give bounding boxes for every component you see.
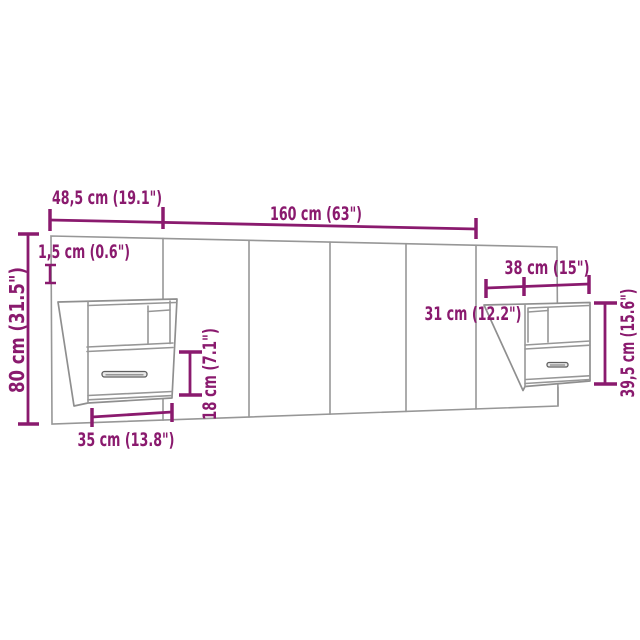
label-cabinet-total-width: 38 cm (15") xyxy=(505,257,590,279)
top-width-dim-line xyxy=(50,220,476,229)
label-drawer-height: 18 cm (7.1") xyxy=(199,328,221,420)
cabinet-width-dim-line xyxy=(486,284,589,288)
diagram-canvas: 48,5 cm (19.1") 160 cm (63") 1,5 cm (0.6… xyxy=(0,0,640,640)
label-cabinet-front-width: 35 cm (13.8") xyxy=(78,429,175,451)
label-cabinet-depth: 31 cm (12.2") xyxy=(425,303,522,325)
label-left-section-width: 48,5 cm (19.1") xyxy=(52,187,162,209)
front-width-dim-line xyxy=(92,412,172,417)
left-cabinet-body xyxy=(58,299,177,406)
label-cabinet-height: 39,5 cm (15.6") xyxy=(617,289,639,398)
label-panel-thickness: 1,5 cm (0.6") xyxy=(38,241,130,263)
label-center-section-width: 160 cm (63") xyxy=(270,203,362,225)
label-headboard-height: 80 cm (31.5") xyxy=(5,267,29,393)
left-cabinet xyxy=(58,299,177,406)
dimension-diagram: 48,5 cm (19.1") 160 cm (63") 1,5 cm (0.6… xyxy=(0,0,640,640)
